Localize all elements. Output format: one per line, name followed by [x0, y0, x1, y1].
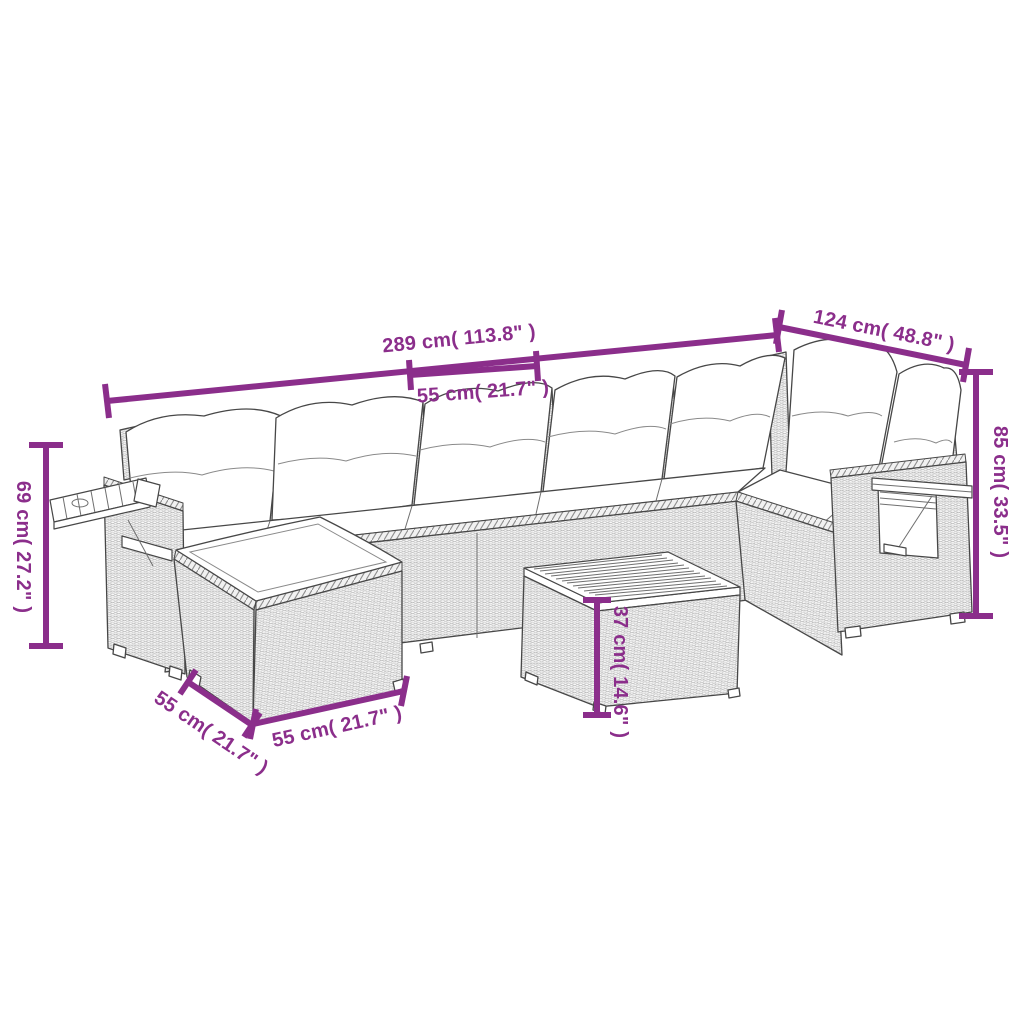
- back-cushion: [543, 371, 675, 492]
- dim-arm-height-label: 69 cm( 27.2" ): [12, 481, 34, 613]
- product-dimension-diagram: 289 cm( 113.8" ) 124 cm( 48.8" ) 55 cm( …: [0, 0, 1024, 1024]
- right-armrest: [830, 454, 972, 638]
- back-cushion: [664, 355, 785, 479]
- ottoman: [174, 517, 405, 723]
- dim-total-length-label: 289 cm( 113.8" ): [381, 321, 536, 358]
- diagram-svg: 289 cm( 113.8" ) 124 cm( 48.8" ) 55 cm( …: [0, 0, 1024, 1024]
- back-cushion: [272, 397, 423, 520]
- dim-table-height-label: 37 cm( 14.6" ): [609, 606, 631, 738]
- dim-back-height-label: 85 cm( 33.5" ): [989, 426, 1011, 558]
